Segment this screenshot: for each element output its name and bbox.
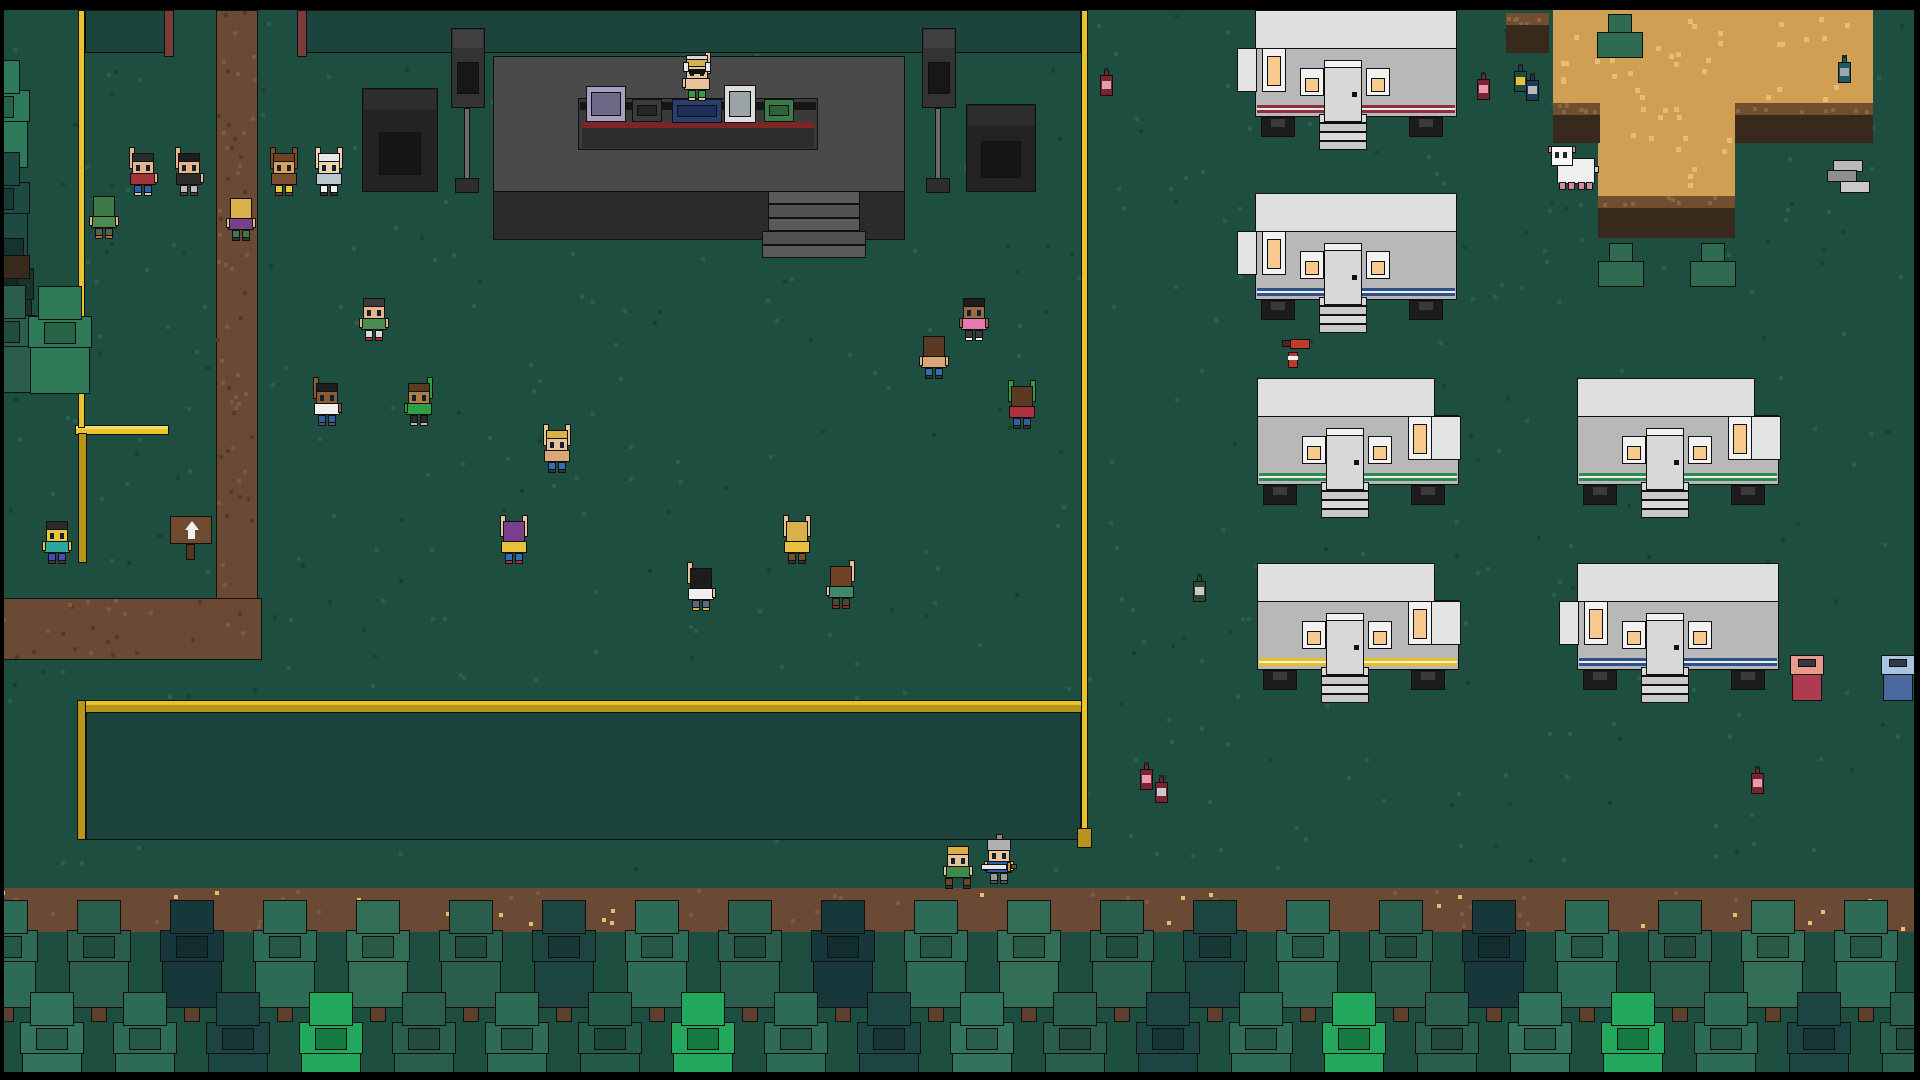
trailer-window-glass	[1305, 78, 1319, 92]
tree-crown-inset	[1710, 1028, 1742, 1050]
grass-speck	[1017, 354, 1021, 358]
trailer-door-lintel	[1326, 428, 1364, 436]
person-shoe	[798, 560, 806, 564]
trailer-door-lintel	[1324, 243, 1362, 251]
grass-speck	[110, 93, 114, 97]
path-speck	[226, 449, 230, 453]
trailer-door-handle[interactable]	[1674, 645, 1679, 650]
grass-speck	[1112, 305, 1116, 309]
dirt-speck	[1526, 922, 1530, 926]
person-torso[interactable]	[44, 541, 70, 553]
path-speck	[225, 325, 229, 329]
grass-speck	[575, 476, 579, 480]
tree-crown	[774, 992, 818, 1026]
grass-speck	[1119, 702, 1123, 706]
grass-speck	[580, 295, 584, 299]
rim-speck	[1583, 109, 1587, 113]
synth-panel	[729, 91, 751, 117]
trailer-steps[interactable]	[1319, 132, 1367, 141]
trailer-wheel-hub	[1421, 672, 1435, 680]
path-speck	[252, 55, 256, 59]
sand-speck	[1640, 95, 1645, 100]
person-head	[1011, 386, 1033, 408]
dirt-speck	[1145, 900, 1149, 904]
grass-speck	[809, 338, 813, 342]
tree-crown	[449, 900, 493, 934]
grass-speck	[1129, 834, 1133, 838]
person-shoe	[702, 607, 710, 611]
grass-speck	[591, 412, 595, 416]
path-speck	[191, 638, 195, 642]
sign-arrow-stem	[188, 529, 195, 539]
tree-crown	[263, 900, 307, 934]
person-torso[interactable]	[176, 173, 202, 185]
sand-speck	[1777, 87, 1782, 92]
grass-speck	[1899, 275, 1903, 279]
person-shoe	[698, 97, 706, 101]
tree-crown	[588, 992, 632, 1026]
path-speck	[220, 359, 224, 363]
path-speck	[253, 78, 257, 82]
person-shoe	[548, 469, 556, 473]
grass-speck	[195, 350, 199, 354]
sheep-foot	[1559, 182, 1566, 190]
trailer-door[interactable]	[1326, 613, 1364, 675]
grass-speck	[426, 473, 430, 477]
rim-speck	[1800, 110, 1804, 114]
dirt-speck	[1733, 913, 1737, 917]
trash-bin-body[interactable]	[1883, 673, 1913, 701]
grass-speck	[758, 609, 762, 613]
sand-speck	[1688, 174, 1693, 179]
path-speck	[89, 651, 93, 655]
sand-speck	[1823, 97, 1828, 102]
person-torso[interactable]	[130, 173, 156, 185]
path-speck	[114, 599, 118, 603]
person-eye	[50, 533, 54, 539]
person-eye	[1002, 853, 1006, 859]
headphones-cup	[705, 62, 711, 72]
path-speck	[243, 190, 247, 194]
dj-table-front	[582, 128, 814, 148]
grass-speck	[1548, 732, 1552, 736]
tree-trunk	[556, 1006, 572, 1022]
person-eye	[377, 310, 381, 316]
grass-speck	[261, 88, 265, 92]
grass-speck	[1841, 230, 1845, 234]
person-arm	[42, 541, 46, 551]
goal-post	[78, 433, 87, 563]
person-torso[interactable]	[316, 173, 342, 185]
grass-speck	[1786, 208, 1790, 212]
person-torso[interactable]	[684, 78, 710, 90]
person-shoe	[95, 235, 103, 239]
trailer-steps[interactable]	[1321, 676, 1369, 685]
person-eye	[60, 533, 64, 539]
sand-speck	[1677, 115, 1682, 120]
trailer-wheel-hub	[1593, 487, 1607, 495]
person-torso[interactable]	[91, 216, 117, 228]
grass-speck	[61, 183, 65, 187]
grass-speck	[399, 852, 403, 856]
grass-speck	[1647, 555, 1651, 559]
grass-speck	[269, 264, 273, 268]
grass-speck	[73, 123, 77, 127]
tree-crown	[1704, 992, 1748, 1026]
rim-speck	[1513, 18, 1517, 22]
grass-speck	[1236, 695, 1240, 699]
fence-rail	[77, 700, 1088, 713]
person-shoe	[105, 235, 113, 239]
trailer-steps[interactable]	[1319, 141, 1367, 150]
trailer-steps[interactable]	[1319, 324, 1367, 333]
bottle-label	[1157, 788, 1166, 796]
path-speck	[245, 253, 249, 257]
tree-crown-inset	[1431, 1028, 1463, 1050]
tree-crown-inset	[501, 1028, 533, 1050]
rim-speck	[1537, 18, 1541, 22]
trailer-steps[interactable]	[1321, 685, 1369, 694]
tree-crown	[1332, 992, 1376, 1026]
dirt-speck	[1641, 924, 1645, 928]
grass-speck	[381, 599, 385, 603]
tree-crown-inset	[362, 936, 394, 958]
sand-speck	[1718, 41, 1723, 46]
speaker-pole	[464, 108, 470, 180]
tree-crown-inset	[827, 936, 859, 958]
grass-speck	[166, 325, 170, 329]
grass-speck	[1109, 521, 1113, 525]
person-torso[interactable]	[406, 403, 432, 415]
trailer-window-glass	[1373, 446, 1387, 460]
grass-speck	[1845, 691, 1849, 695]
person-shoe	[420, 422, 428, 426]
grass-speck	[1870, 167, 1874, 171]
person-eye	[992, 853, 996, 859]
speaker-cone	[981, 141, 1020, 178]
sand-speck	[1692, 167, 1697, 172]
dirt-speck	[499, 913, 503, 917]
grass-speck	[1221, 528, 1225, 532]
grass-speck	[137, 846, 141, 850]
sand-speck	[1674, 62, 1679, 67]
grass-speck	[1784, 218, 1788, 222]
person-torso[interactable]	[688, 588, 714, 600]
person-arm	[943, 866, 947, 876]
pole-speaker-cone	[457, 62, 479, 94]
tree-crown	[914, 900, 958, 934]
trailer-door-handle[interactable]	[1354, 460, 1359, 465]
dirt-speck	[529, 922, 533, 926]
tree-crown-inset	[269, 936, 301, 958]
sheep-foot	[1586, 182, 1593, 190]
trailer-steps[interactable]	[1321, 509, 1369, 518]
grass-speck	[1822, 247, 1826, 251]
person-eye	[146, 165, 150, 171]
person-shoe	[515, 560, 523, 564]
path-speck	[218, 233, 222, 237]
sand-speck	[1766, 95, 1771, 100]
grass-speck	[1537, 536, 1541, 540]
grass-speck	[297, 557, 301, 561]
tree-crown-inset	[129, 1028, 161, 1050]
person-torso[interactable]	[544, 450, 570, 462]
grass-speck	[783, 280, 787, 284]
rim-speck	[1824, 109, 1828, 113]
person-shoe	[232, 237, 240, 241]
rim-speck	[1736, 109, 1740, 113]
speaker-pole-base	[455, 178, 479, 193]
path-speck	[32, 650, 36, 654]
person-torso[interactable]	[961, 318, 987, 330]
person-torso[interactable]	[271, 173, 297, 185]
grass-speck	[1762, 336, 1766, 340]
dirt-patch-body	[1506, 25, 1549, 53]
person-shoe	[692, 607, 700, 611]
sand-speck	[1692, 24, 1697, 29]
grass-speck	[629, 445, 633, 449]
grass-speck	[933, 601, 937, 605]
grass-speck	[1900, 24, 1904, 28]
grass-speck	[1046, 244, 1050, 248]
path-speck	[231, 446, 235, 450]
path-speck	[221, 381, 225, 385]
trailer-door[interactable]	[1324, 243, 1362, 305]
tree-crown	[402, 992, 446, 1026]
person-torso[interactable]	[1009, 406, 1035, 418]
person-head	[93, 196, 115, 218]
person-head	[230, 198, 252, 220]
bottle-label	[1479, 85, 1488, 93]
speaker-cone	[379, 132, 422, 176]
grass-speck	[1110, 460, 1114, 464]
tree-trunk	[1672, 1006, 1688, 1022]
tree-crown-inset	[176, 936, 208, 958]
tree-crown	[170, 900, 214, 934]
grass-speck	[1167, 718, 1171, 722]
trailer-steps[interactable]	[1641, 500, 1689, 509]
grass-speck	[1455, 554, 1459, 558]
person-arm	[89, 216, 93, 226]
letterbox-left	[0, 0, 4, 1080]
trailer-steps[interactable]	[1321, 500, 1369, 509]
grass-speck	[273, 615, 277, 619]
tree-trunk	[1858, 1006, 1874, 1022]
boombox-panel	[591, 92, 621, 116]
grass-speck	[457, 411, 461, 415]
tree-crown	[1286, 900, 1330, 934]
trailer-door-lintel	[1646, 428, 1684, 436]
person-torso[interactable]	[828, 586, 854, 598]
grass-speck	[582, 512, 586, 516]
tree-crown	[681, 992, 725, 1026]
tree-crown-inset	[1106, 936, 1138, 958]
bottle-cap	[1842, 55, 1847, 58]
grass-speck	[1223, 219, 1227, 223]
grass-speck	[1054, 868, 1058, 872]
serving-tray[interactable]	[1840, 181, 1870, 193]
path-speck	[111, 653, 115, 657]
grass-speck	[1796, 522, 1800, 526]
tree-crown	[1100, 900, 1144, 934]
tree-trunk	[835, 1006, 851, 1022]
grass-speck	[1169, 187, 1173, 191]
grass-speck	[1779, 376, 1783, 380]
grass-speck	[289, 618, 293, 622]
tree-back	[813, 960, 873, 1008]
path-speck	[243, 470, 247, 474]
tree-crown	[1007, 900, 1051, 934]
sand-speck	[1688, 183, 1693, 188]
grass-speck	[1834, 599, 1838, 603]
path-speck	[242, 131, 246, 135]
trailer-door[interactable]	[1324, 60, 1362, 122]
rim-speck	[1562, 110, 1566, 114]
path-speck	[68, 603, 72, 607]
person-eye	[277, 165, 281, 171]
grass-speck	[1175, 15, 1179, 19]
grass-speck	[534, 678, 538, 682]
person-torso[interactable]	[228, 218, 254, 230]
tree-crown	[38, 286, 82, 320]
sand-speck	[1561, 61, 1566, 66]
grass-speck	[1571, 586, 1575, 590]
person-shoe	[832, 605, 840, 609]
sand-cliff-shadow	[1553, 115, 1600, 143]
path-speck	[73, 647, 77, 651]
path-speck	[227, 123, 231, 127]
grass-speck	[520, 489, 524, 493]
person-shoe	[318, 422, 326, 426]
sand-speck	[1631, 133, 1636, 138]
trailer-steps[interactable]	[1321, 491, 1369, 500]
sand-speck	[1780, 42, 1785, 47]
grass-speck	[444, 200, 448, 204]
person-torso[interactable]	[501, 541, 527, 553]
dirt-speck	[1460, 912, 1464, 916]
grass-speck	[13, 48, 17, 52]
sunglasses	[689, 69, 705, 74]
tree-crown-inset	[966, 1028, 998, 1050]
grass-speck	[1812, 848, 1816, 852]
path-speck	[216, 338, 220, 342]
grass-speck	[1142, 640, 1146, 644]
sand-speck	[1706, 58, 1711, 63]
trailer-steps[interactable]	[1319, 315, 1367, 324]
tree-crown-inset	[1059, 1028, 1091, 1050]
bottle-label	[1195, 587, 1204, 595]
trailer-roof	[1257, 378, 1435, 417]
person-torso[interactable]	[314, 403, 340, 415]
trailer-endcap	[1431, 601, 1461, 645]
tree-crown-inset	[1524, 1028, 1556, 1050]
tree-crown	[1844, 900, 1888, 934]
trailer-door[interactable]	[1326, 428, 1364, 490]
person-torso[interactable]	[921, 356, 947, 368]
path-speck	[123, 612, 127, 616]
grass-speck	[1088, 677, 1092, 681]
person-head	[923, 336, 945, 358]
grass-speck	[1201, 170, 1205, 174]
tree-crown	[1797, 992, 1841, 1026]
rim-speck	[1623, 203, 1627, 207]
headphones-band	[686, 55, 708, 60]
grass-speck	[1750, 290, 1754, 294]
grass-speck	[1620, 369, 1624, 373]
tree-trunk	[1393, 1006, 1409, 1022]
grass-speck	[1347, 776, 1351, 780]
grass-speck	[767, 568, 771, 572]
person-arm	[385, 318, 389, 328]
path-speck	[230, 267, 234, 271]
grass-speck	[1529, 859, 1533, 863]
trailer-door-lintel	[1646, 613, 1684, 621]
trailer-door-handle[interactable]	[1354, 645, 1359, 650]
sand-area	[1598, 103, 1735, 198]
dirt-speck	[1458, 895, 1462, 899]
grass-speck	[1766, 240, 1770, 244]
grass-speck	[187, 407, 191, 411]
person-shoe	[1023, 425, 1031, 429]
trailer-steps[interactable]	[1319, 123, 1367, 132]
grass-speck	[594, 590, 598, 594]
sand-speck	[1561, 79, 1566, 84]
grass-speck	[1226, 31, 1230, 35]
trailer-door-handle[interactable]	[1674, 460, 1679, 465]
trailer-steps[interactable]	[1641, 694, 1689, 703]
grass-speck	[552, 484, 556, 488]
path-speck	[217, 260, 221, 264]
person-torso[interactable]	[945, 866, 971, 878]
grass-speck	[13, 683, 17, 687]
trailer-steps[interactable]	[1641, 491, 1689, 500]
trash-bin-body[interactable]	[1792, 673, 1822, 701]
trailer-door[interactable]	[1646, 428, 1684, 490]
person-eye	[182, 165, 186, 171]
grass-speck	[105, 250, 109, 254]
bottle-label	[1840, 68, 1849, 76]
tree-crown	[1193, 900, 1237, 934]
tree-back	[1557, 960, 1617, 1008]
grass-speck	[679, 480, 683, 484]
trailer-steps[interactable]	[1641, 685, 1689, 694]
person-torso[interactable]	[784, 541, 810, 553]
grass-speck	[1122, 207, 1126, 211]
person-shoe	[842, 605, 850, 609]
grass-speck	[1869, 432, 1873, 436]
person-arm	[959, 318, 963, 328]
grass-speck	[1508, 802, 1512, 806]
grass-speck	[1569, 544, 1573, 548]
trailer-door[interactable]	[1646, 613, 1684, 675]
tree-crown	[1146, 992, 1190, 1026]
side-tree	[0, 345, 34, 393]
trailer-steps[interactable]	[1319, 306, 1367, 315]
trailer-door-handle[interactable]	[1352, 275, 1357, 280]
grass-speck	[855, 662, 859, 666]
fire-extinguisher-canister[interactable]	[1288, 352, 1298, 368]
trailer-door-handle[interactable]	[1352, 92, 1357, 97]
trailer-steps[interactable]	[1641, 676, 1689, 685]
person-shoe	[48, 560, 56, 564]
trailer-steps[interactable]	[1641, 509, 1689, 518]
person-torso[interactable]	[361, 318, 387, 330]
tree-crown	[635, 900, 679, 934]
grass-speck	[1500, 283, 1504, 287]
trailer-steps[interactable]	[1321, 694, 1369, 703]
fire-extinguisher[interactable]	[1290, 339, 1310, 349]
tree-crown	[728, 900, 772, 934]
